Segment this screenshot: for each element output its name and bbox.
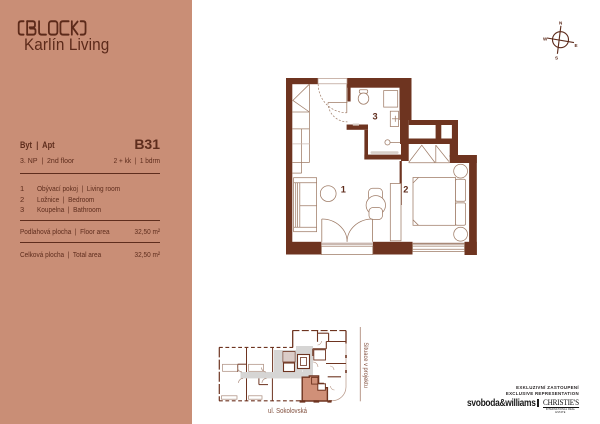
svg-text:N: N <box>559 21 563 26</box>
svg-text:E: E <box>575 43 578 48</box>
svg-text:3: 3 <box>373 112 378 122</box>
svg-text:Situace v projektu: Situace v projektu <box>362 342 369 388</box>
svg-text:W: W <box>543 37 548 42</box>
svg-text:2: 2 <box>403 185 408 195</box>
svg-text:1: 1 <box>341 185 346 195</box>
svg-text:ul. Sokolovská: ul. Sokolovská <box>268 406 308 415</box>
svg-text:S: S <box>555 56 558 61</box>
